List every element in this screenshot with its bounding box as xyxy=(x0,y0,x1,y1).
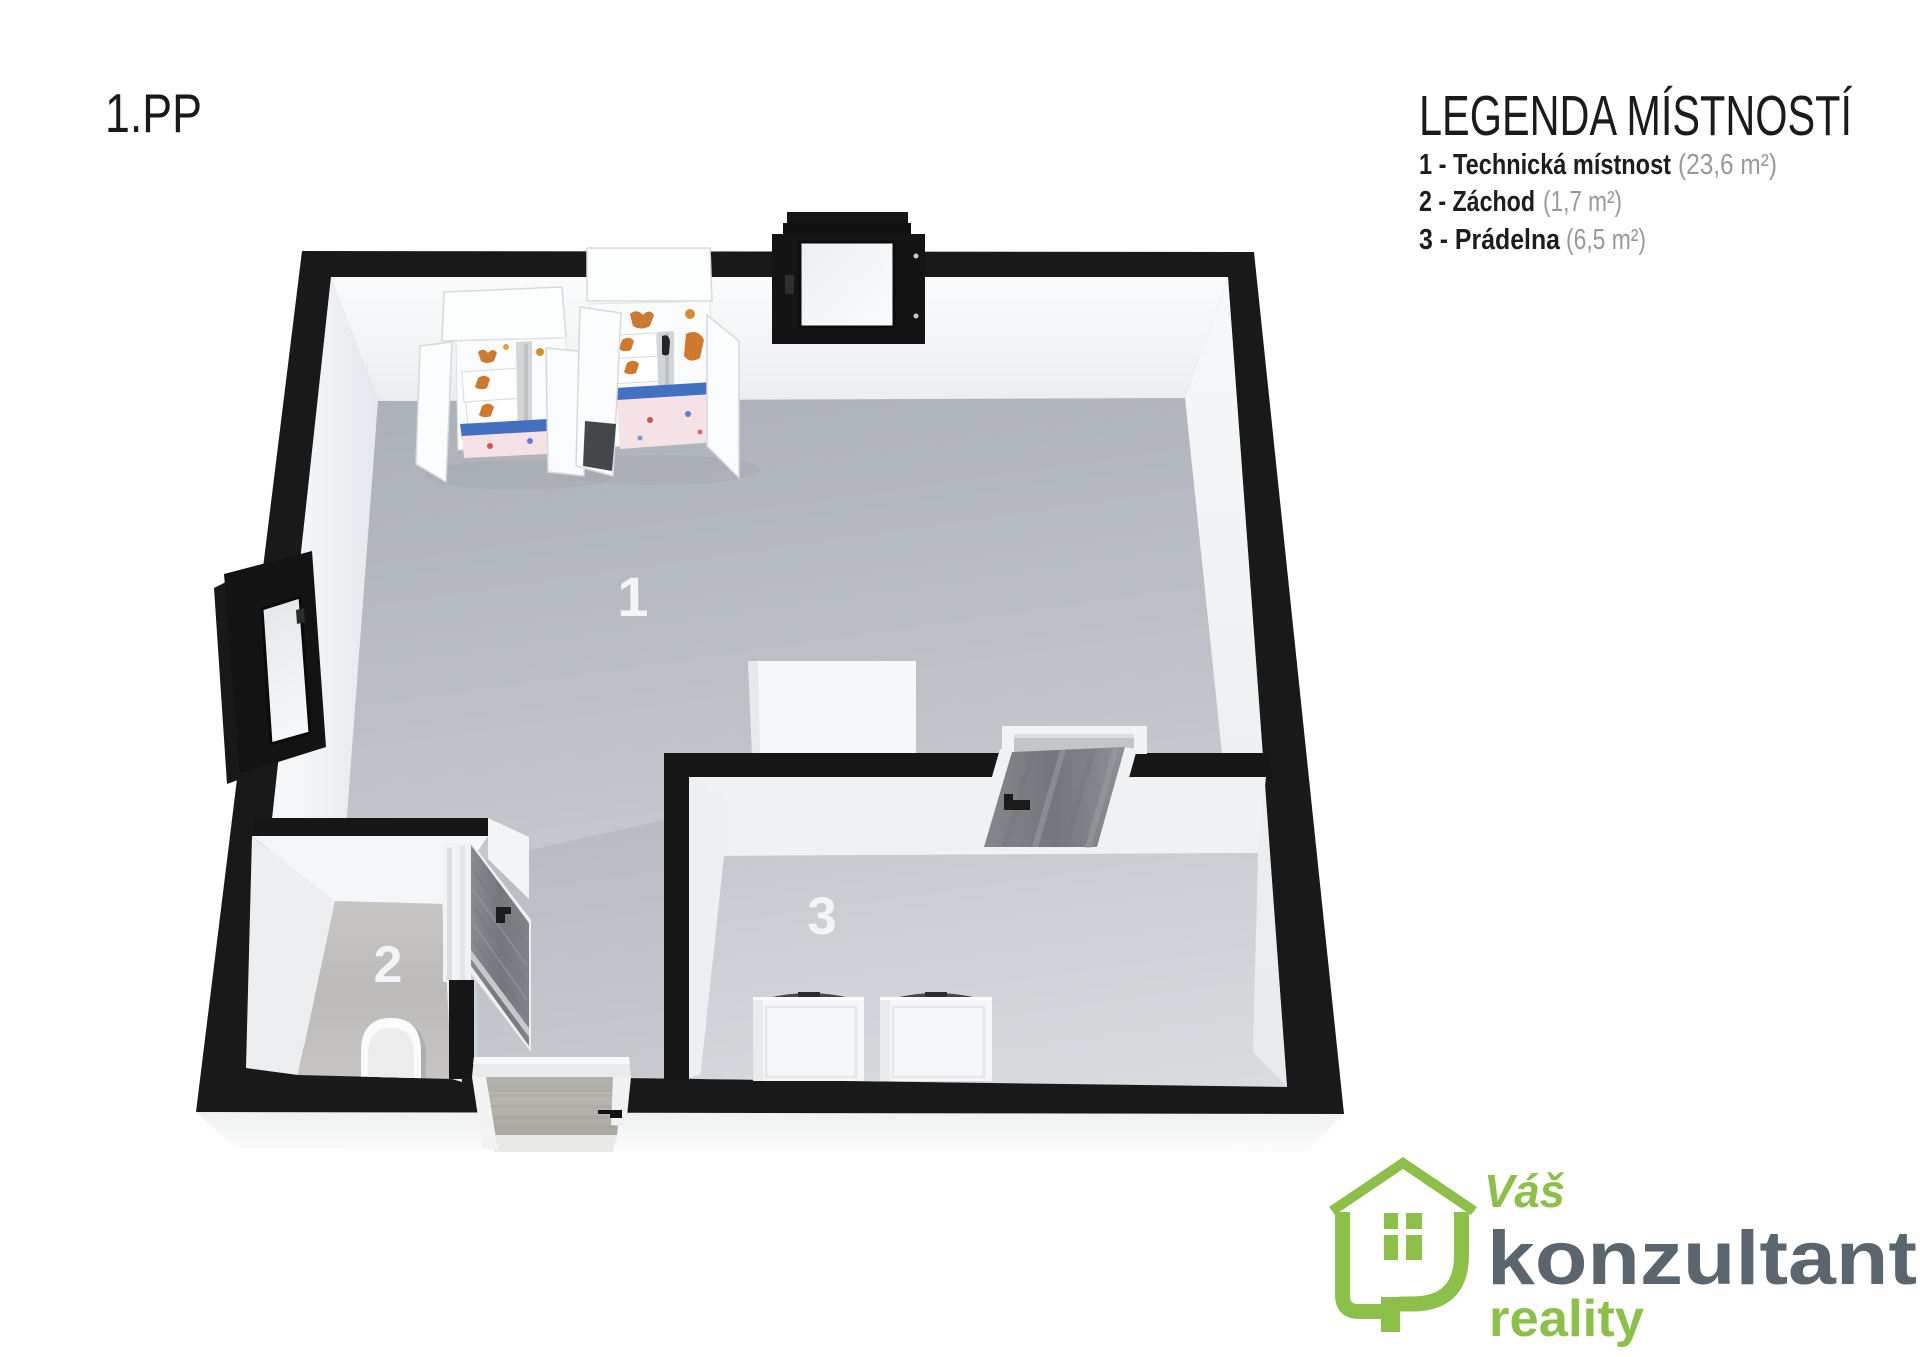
svg-text:2 - Záchod: 2 - Záchod xyxy=(1419,186,1535,218)
svg-text:(1,7 m²): (1,7 m²) xyxy=(1543,186,1622,218)
svg-text:konzultant: konzultant xyxy=(1487,1216,1917,1301)
svg-text:(6,5 m²): (6,5 m²) xyxy=(1566,224,1646,256)
svg-text:1 - Technická místnost: 1 - Technická místnost xyxy=(1419,149,1671,181)
svg-text:1: 1 xyxy=(617,565,648,628)
svg-text:reality: reality xyxy=(1489,1290,1644,1348)
svg-text:1.PP: 1.PP xyxy=(105,82,202,144)
svg-text:LEGENDA MÍSTNOSTÍ: LEGENDA MÍSTNOSTÍ xyxy=(1419,84,1852,148)
svg-text:2: 2 xyxy=(374,936,403,994)
svg-text:3 - Prádelna: 3 - Prádelna xyxy=(1419,224,1561,256)
svg-text:Váš: Váš xyxy=(1484,1165,1565,1217)
svg-text:3: 3 xyxy=(807,887,836,946)
svg-text:(23,6 m²): (23,6 m²) xyxy=(1678,149,1777,181)
